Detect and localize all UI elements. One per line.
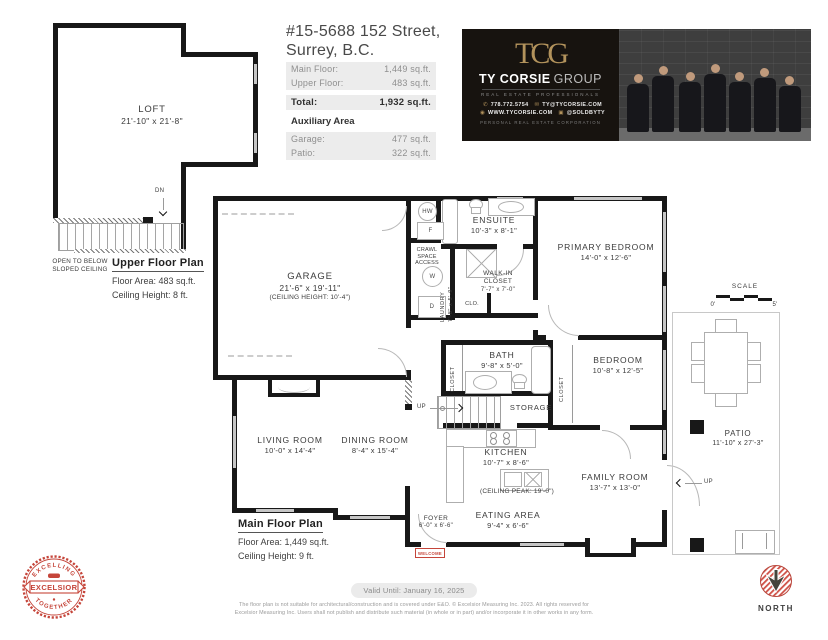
instagram-icon: ▣ xyxy=(558,110,564,116)
auxiliary-area-title: Auxiliary Area xyxy=(291,116,436,127)
wall xyxy=(487,293,491,317)
garage-door-dash xyxy=(228,355,292,357)
main-floor-plan-title-block: Main Floor Plan Floor Area: 1,449 sq.ft.… xyxy=(238,514,329,563)
window xyxy=(663,286,666,332)
stair-direction-line xyxy=(685,483,702,484)
welcome-mat: WELCOME xyxy=(415,548,445,558)
wall xyxy=(53,23,58,223)
patio-table xyxy=(704,332,748,394)
realtor-banner: TCG TY CORSIEGROUP REAL ESTATE PROFESSIO… xyxy=(462,29,811,141)
laundry-dims: 7'-8" x 5'-9" xyxy=(448,262,454,322)
team-photo-person xyxy=(779,76,801,132)
open-to-below-note: OPEN TO BELOW SLOPED CEILING xyxy=(38,258,122,273)
main-floor-row: Main Floor: 1,449 sq.ft. xyxy=(286,62,436,76)
total-value: 1,932 sq.ft. xyxy=(379,97,431,108)
closet-label: CLOSET xyxy=(559,362,565,402)
scale-segment xyxy=(758,298,772,301)
north-indicator: NORTH xyxy=(752,564,800,613)
upper-plan-title: Upper Floor Plan xyxy=(112,257,204,272)
wall-post xyxy=(405,404,412,410)
room-label-eating-area: EATING AREA 9'-4" x 6'-6" xyxy=(460,510,556,531)
stair-direction-dot xyxy=(440,406,445,411)
team-photo-person xyxy=(729,72,751,132)
wall xyxy=(53,23,186,28)
patio-area-row: Patio: 322 sq.ft. xyxy=(286,146,436,160)
bbq-detail xyxy=(742,533,743,549)
room-label-kitchen: KITCHEN 10'-7" x 8'-6" xyxy=(468,447,544,468)
patio-chair xyxy=(715,319,737,333)
scale-segment xyxy=(716,295,730,298)
phone-number: 778.772.5754 xyxy=(491,102,529,108)
window xyxy=(254,64,257,84)
team-photo-person xyxy=(754,68,776,132)
patio-chair xyxy=(747,342,761,361)
valid-until-pill: Valid Until: January 16, 2025 xyxy=(0,580,828,598)
room-label-dining-room: DINING ROOM 8'-4" x 15'-4" xyxy=(327,435,423,456)
team-photo-person xyxy=(704,64,726,132)
disclaimer-line2: Excelsior Measuring Inc. Users shall not… xyxy=(0,609,828,617)
patio-area-value: 322 sq.ft. xyxy=(392,148,431,158)
excelsior-seal-graphic: EXCELLING TOGETHER EXCELSIOR xyxy=(20,553,88,621)
north-compass-icon xyxy=(759,564,793,598)
patio-chair xyxy=(715,393,737,407)
upper-floor-row: Upper Floor: 483 sq.ft. xyxy=(286,76,436,90)
instagram-handle: @SOLDBYTY xyxy=(567,110,605,116)
main-plan-title: Main Floor Plan xyxy=(238,518,323,533)
team-photo-person xyxy=(679,72,701,132)
total-label: Total: xyxy=(291,97,317,108)
staircase-up xyxy=(437,396,501,429)
arrow-down-icon xyxy=(159,208,167,216)
hot-water-tank: HW xyxy=(418,202,437,221)
window xyxy=(520,543,564,546)
crawl-door-swing xyxy=(382,206,407,231)
wall xyxy=(441,340,553,345)
window xyxy=(350,516,390,519)
bedroom-door-swing xyxy=(602,430,631,459)
island-sink-basin xyxy=(524,472,542,487)
wall xyxy=(441,340,446,396)
banner-info-panel: TCG TY CORSIEGROUP REAL ESTATE PROFESSIO… xyxy=(462,29,619,141)
main-floor-value: 1,449 sq.ft. xyxy=(384,64,431,74)
room-label-foyer: FOYER 6'-0" x 6'-6" xyxy=(410,515,462,531)
patio-chair xyxy=(691,342,705,361)
scale-end: 5' xyxy=(770,302,780,309)
patio-area-label: Patio: xyxy=(291,148,315,158)
bath-sink xyxy=(473,375,497,390)
closet-label: CLOSET xyxy=(450,352,456,392)
bbq-detail xyxy=(766,533,767,549)
phone-icon: ✆ xyxy=(483,102,488,108)
seal-car-icon xyxy=(48,574,60,579)
corporation-note: PERSONAL REAL ESTATE CORPORATION xyxy=(462,120,619,125)
kitchen-door-opening xyxy=(501,423,517,428)
scale-segment xyxy=(730,298,744,301)
area-summary: Main Floor: 1,449 sq.ft. Upper Floor: 48… xyxy=(286,62,436,160)
scale-start: 0' xyxy=(708,302,718,309)
wall xyxy=(181,52,258,57)
globe-icon: ◉ xyxy=(480,110,485,116)
fireplace-curve xyxy=(278,381,310,393)
window xyxy=(256,509,294,512)
disclaimer: The floor plan is not suitable for archi… xyxy=(0,601,828,617)
garage-door-swing xyxy=(378,348,407,377)
main-floor-label: Main Floor: xyxy=(291,64,338,74)
ensuite-sink xyxy=(498,201,524,213)
fireplace-wall xyxy=(268,393,320,397)
closet-label-clo: CLO. xyxy=(459,301,485,308)
valid-until-text: Valid Until: January 16, 2025 xyxy=(351,583,476,598)
website-url: WWW.TYCORSIE.COM xyxy=(488,110,553,116)
seal-banner-text: EXCELSIOR xyxy=(31,583,78,592)
team-photo xyxy=(619,29,811,141)
garage-area-value: 477 sq.ft. xyxy=(392,134,431,144)
bay-window-wall xyxy=(585,553,636,557)
patio-chair xyxy=(747,364,761,383)
wall xyxy=(455,313,538,318)
room-label-garage: GARAGE 21'-6" x 19'-11" (CEILING HEIGHT:… xyxy=(240,271,380,303)
kitchen-ceiling-note: (CEILING PEAK: 19'-0") xyxy=(464,488,570,496)
upper-floor-plan-title-block: Upper Floor Plan Floor Area: 483 sq.ft. … xyxy=(112,253,204,302)
banner-contact-row2: ◉ WWW.TYCORSIE.COM ▣ @SOLDBYTY xyxy=(462,110,619,116)
main-plan-stats: Floor Area: 1,449 sq.ft. Ceiling Height:… xyxy=(238,536,329,563)
email-address: TY@TYCORSIE.COM xyxy=(542,102,602,108)
staircase-down xyxy=(58,223,184,251)
bath-toilet-tank xyxy=(514,382,525,389)
primary-door-swing xyxy=(548,305,579,336)
room-label-primary-bedroom: PRIMARY BEDROOM 14'-0" x 12'-6" xyxy=(548,242,664,263)
upper-floor-label: Upper Floor: xyxy=(291,78,343,88)
stairs-dn-label: DN xyxy=(155,188,164,194)
patio-post xyxy=(690,538,704,552)
north-label: NORTH xyxy=(752,604,800,613)
address-line2: Surrey, B.C. xyxy=(286,41,440,60)
window xyxy=(574,197,642,200)
burner xyxy=(490,438,497,445)
team-photo-person xyxy=(627,74,649,132)
total-area-row: Total: 1,932 sq.ft. xyxy=(286,95,436,110)
garage-door-dash xyxy=(222,213,294,215)
patio-chair xyxy=(691,364,705,383)
disclaimer-line1: The floor plan is not suitable for archi… xyxy=(0,601,828,609)
garage-area-label: Garage: xyxy=(291,134,325,144)
room-label-bedroom: BEDROOM 10'-8" x 12'-5" xyxy=(568,355,668,376)
burner xyxy=(503,438,510,445)
window xyxy=(254,133,257,153)
excelsior-seal: EXCELLING TOGETHER EXCELSIOR xyxy=(20,553,88,626)
room-label-ensuite: ENSUITE 10'-3" x 8'-1" xyxy=(450,215,538,236)
tcg-monogram-logo: TCG xyxy=(462,37,619,70)
furnace: F xyxy=(417,222,444,240)
upper-plan-stats: Floor Area: 483 sq.ft. Ceiling Height: 8… xyxy=(112,275,204,302)
window xyxy=(663,426,666,454)
patio-up-label: UP xyxy=(704,479,713,485)
room-label-loft: LOFT 21'-10" x 21'-8" xyxy=(92,104,212,127)
floor-plan-page: #15-5688 152 Street, Surrey, B.C. Main F… xyxy=(0,0,828,640)
room-label-walk-in-closet: WALK-IN CLOSET 7'-7" x 7'-0" xyxy=(470,270,526,295)
scale-segment xyxy=(744,295,758,298)
team-photo-person xyxy=(652,66,674,132)
wall xyxy=(405,542,421,547)
brand-name: TY CORSIEGROUP xyxy=(462,72,619,86)
wall xyxy=(633,542,667,547)
garage-area-row: Garage: 477 sq.ft. xyxy=(286,132,436,146)
room-label-storage: STORAGE xyxy=(504,403,558,413)
bbq-grill xyxy=(735,530,775,554)
banner-contact-row1: ✆ 778.772.5754 ✉ TY@TYCORSIE.COM xyxy=(462,102,619,108)
window xyxy=(233,416,236,468)
scale-label: SCALE xyxy=(710,283,780,290)
island-sink xyxy=(504,472,522,487)
room-label-bath: BATH 9'-8" x 5'-0" xyxy=(460,350,544,371)
address-line1: #15-5688 152 Street, xyxy=(286,22,440,41)
banner-tagline: REAL ESTATE PROFESSIONALS xyxy=(462,92,619,97)
wall xyxy=(181,162,258,167)
wall xyxy=(446,542,587,547)
garage-door-opening xyxy=(406,328,411,370)
email-icon: ✉ xyxy=(534,102,539,108)
room-label-laundry: LAUNDRY xyxy=(440,262,446,322)
banner-divider xyxy=(482,89,600,90)
room-label-family-room: FAMILY ROOM 13'-7" x 13'-0" xyxy=(562,472,668,493)
property-address: #15-5688 152 Street, Surrey, B.C. xyxy=(286,22,440,60)
scale-bar: SCALE xyxy=(710,283,780,290)
kitchen-counter-side xyxy=(446,446,464,503)
stairs-up-label: UP xyxy=(417,404,426,410)
half-wall-hatch xyxy=(405,380,412,406)
ensuite-toilet-tank xyxy=(471,207,481,214)
room-label-patio: PATIO 11'-10" x 27'-3" xyxy=(697,429,779,448)
wall xyxy=(213,196,218,380)
upper-floor-value: 483 sq.ft. xyxy=(392,78,431,88)
